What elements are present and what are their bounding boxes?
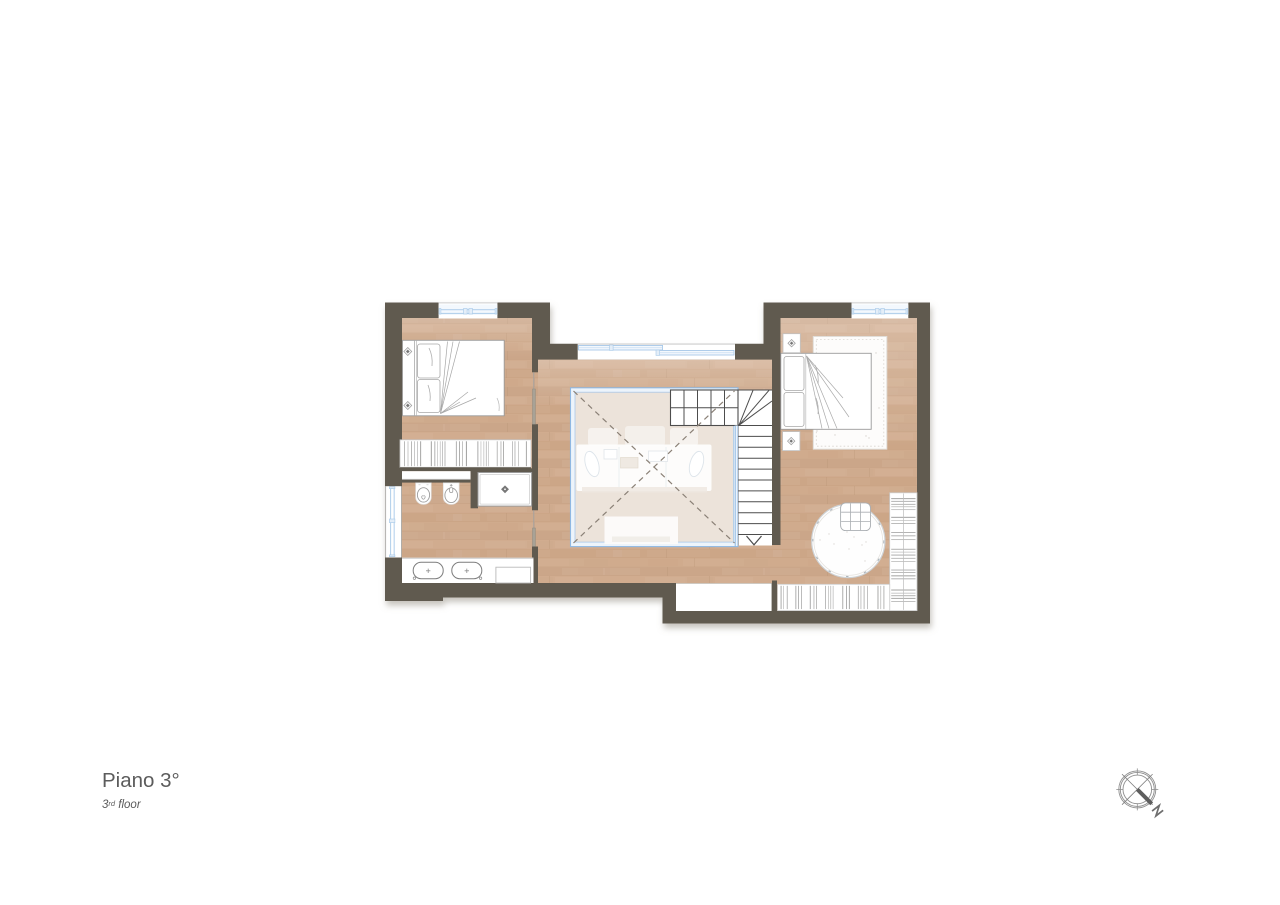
svg-text:3rd floor: 3rd floor [102,799,142,811]
svg-text:Piano 3°: Piano 3° [102,769,180,792]
